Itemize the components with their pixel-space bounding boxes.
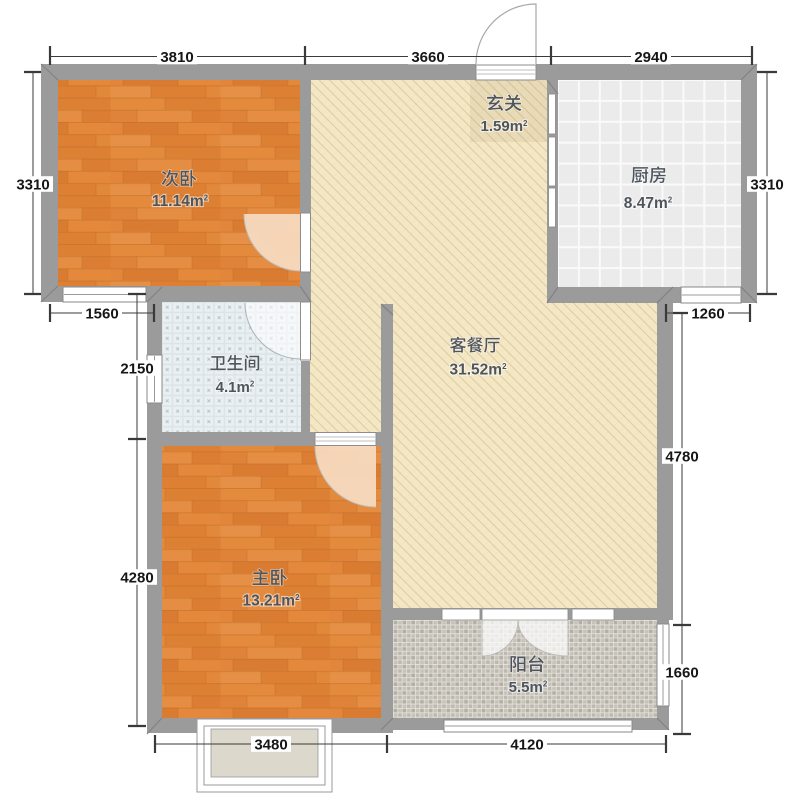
svg-text:31.52m2: 31.52m2 bbox=[449, 361, 507, 378]
svg-text:3810: 3810 bbox=[160, 49, 193, 66]
svg-text:4280: 4280 bbox=[120, 569, 153, 586]
svg-text:2940: 2940 bbox=[634, 49, 667, 66]
svg-text:1660: 1660 bbox=[665, 664, 698, 681]
svg-text:3310: 3310 bbox=[16, 176, 49, 193]
svg-text:3310: 3310 bbox=[750, 176, 783, 193]
svg-text:2150: 2150 bbox=[120, 360, 153, 377]
svg-text:13.21m2: 13.21m2 bbox=[242, 592, 300, 609]
svg-text:1560: 1560 bbox=[85, 305, 118, 322]
svg-text:4780: 4780 bbox=[665, 448, 698, 465]
svg-text:4.1m2: 4.1m2 bbox=[216, 379, 255, 396]
svg-text:3480: 3480 bbox=[254, 736, 287, 753]
svg-text:4120: 4120 bbox=[510, 736, 543, 753]
svg-text:1260: 1260 bbox=[691, 305, 724, 322]
svg-text:5.5m2: 5.5m2 bbox=[509, 679, 548, 696]
svg-text:1.59m2: 1.59m2 bbox=[481, 118, 529, 135]
svg-text:3660: 3660 bbox=[411, 49, 444, 66]
svg-text:11.14m2: 11.14m2 bbox=[152, 193, 209, 210]
svg-text:8.47m2: 8.47m2 bbox=[624, 195, 673, 212]
